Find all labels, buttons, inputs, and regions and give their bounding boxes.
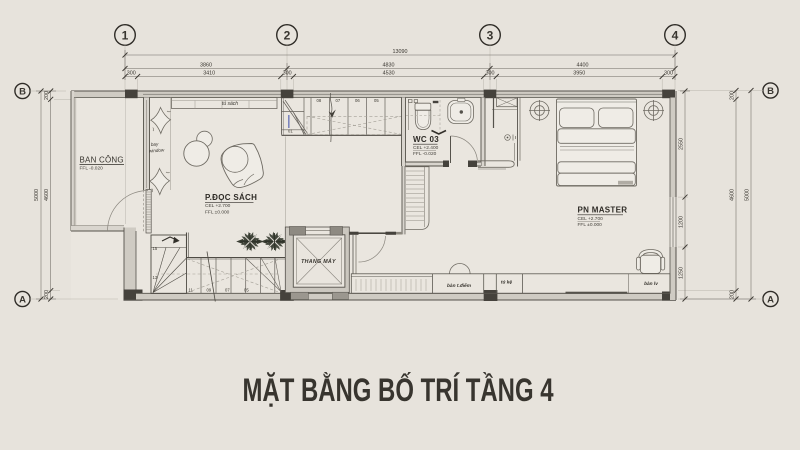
svg-text:5000: 5000 — [745, 189, 751, 201]
svg-text:3950: 3950 — [573, 71, 585, 77]
svg-text:300: 300 — [486, 71, 495, 77]
svg-text:4830: 4830 — [383, 63, 395, 69]
svg-text:A: A — [19, 294, 26, 305]
svg-text:WC 03: WC 03 — [413, 135, 439, 144]
svg-text:CEL +2.700: CEL +2.700 — [205, 203, 231, 209]
svg-text:FFL -0.020: FFL -0.020 — [413, 151, 437, 157]
svg-text:BAN CÔNG: BAN CÔNG — [80, 156, 124, 165]
svg-text:200: 200 — [44, 290, 50, 299]
svg-text:4600: 4600 — [44, 189, 50, 201]
svg-text:06: 06 — [355, 98, 360, 103]
svg-text:THANG MÁY: THANG MÁY — [301, 258, 336, 265]
svg-text:tủ kệ: tủ kệ — [501, 280, 513, 286]
svg-text:A: A — [767, 294, 774, 305]
svg-text:bàn lv: bàn lv — [644, 281, 658, 287]
svg-text:PN MASTER: PN MASTER — [578, 206, 628, 215]
svg-text:FFL -0.020: FFL -0.020 — [80, 165, 104, 171]
svg-text:07: 07 — [225, 288, 230, 293]
svg-text:13: 13 — [153, 275, 158, 280]
svg-text:300: 300 — [127, 71, 136, 77]
svg-text:3860: 3860 — [200, 63, 212, 69]
svg-text:4: 4 — [672, 28, 679, 42]
svg-text:5000: 5000 — [34, 189, 40, 201]
svg-text:B: B — [767, 86, 774, 97]
svg-text:300: 300 — [664, 71, 673, 77]
svg-text:MẶT BẰNG BỐ TRÍ TẦNG 4: MẶT BẰNG BỐ TRÍ TẦNG 4 — [243, 372, 554, 408]
svg-text:2550: 2550 — [679, 138, 685, 150]
svg-text:bàn t.điểm: bàn t.điểm — [447, 282, 472, 289]
svg-text:1200: 1200 — [679, 216, 685, 228]
svg-text:4530: 4530 — [383, 71, 395, 77]
svg-text:FFL ±0.000: FFL ±0.000 — [578, 222, 603, 228]
svg-text:13090: 13090 — [393, 49, 408, 55]
svg-text:05: 05 — [374, 98, 379, 103]
svg-text:200: 200 — [730, 290, 736, 299]
svg-text:01: 01 — [288, 129, 293, 134]
svg-text:05: 05 — [244, 288, 249, 293]
svg-text:4400: 4400 — [577, 63, 589, 69]
svg-text:200: 200 — [730, 91, 736, 100]
svg-text:300: 300 — [283, 71, 292, 77]
svg-text:B: B — [19, 86, 26, 97]
svg-text:200: 200 — [44, 91, 50, 100]
svg-text:11: 11 — [189, 288, 194, 293]
svg-text:2: 2 — [284, 28, 291, 42]
svg-text:FFL ±0.000: FFL ±0.000 — [205, 209, 230, 215]
svg-text:4600: 4600 — [730, 189, 736, 201]
svg-text:bay: bay — [151, 141, 159, 147]
svg-text:CEL +2.400: CEL +2.400 — [413, 145, 439, 151]
svg-text:3: 3 — [487, 28, 494, 42]
svg-text:tủ sách: tủ sách — [222, 100, 238, 107]
svg-text:1250: 1250 — [679, 267, 685, 279]
svg-text:CEL +2.700: CEL +2.700 — [578, 216, 604, 222]
svg-text:15: 15 — [153, 246, 158, 251]
svg-text:1: 1 — [122, 28, 129, 42]
svg-text:09: 09 — [207, 288, 212, 293]
svg-text:07: 07 — [336, 98, 341, 103]
svg-text:P.ĐỌC SÁCH: P.ĐỌC SÁCH — [205, 193, 257, 202]
svg-text:08: 08 — [317, 98, 322, 103]
svg-text:3410: 3410 — [203, 71, 215, 77]
